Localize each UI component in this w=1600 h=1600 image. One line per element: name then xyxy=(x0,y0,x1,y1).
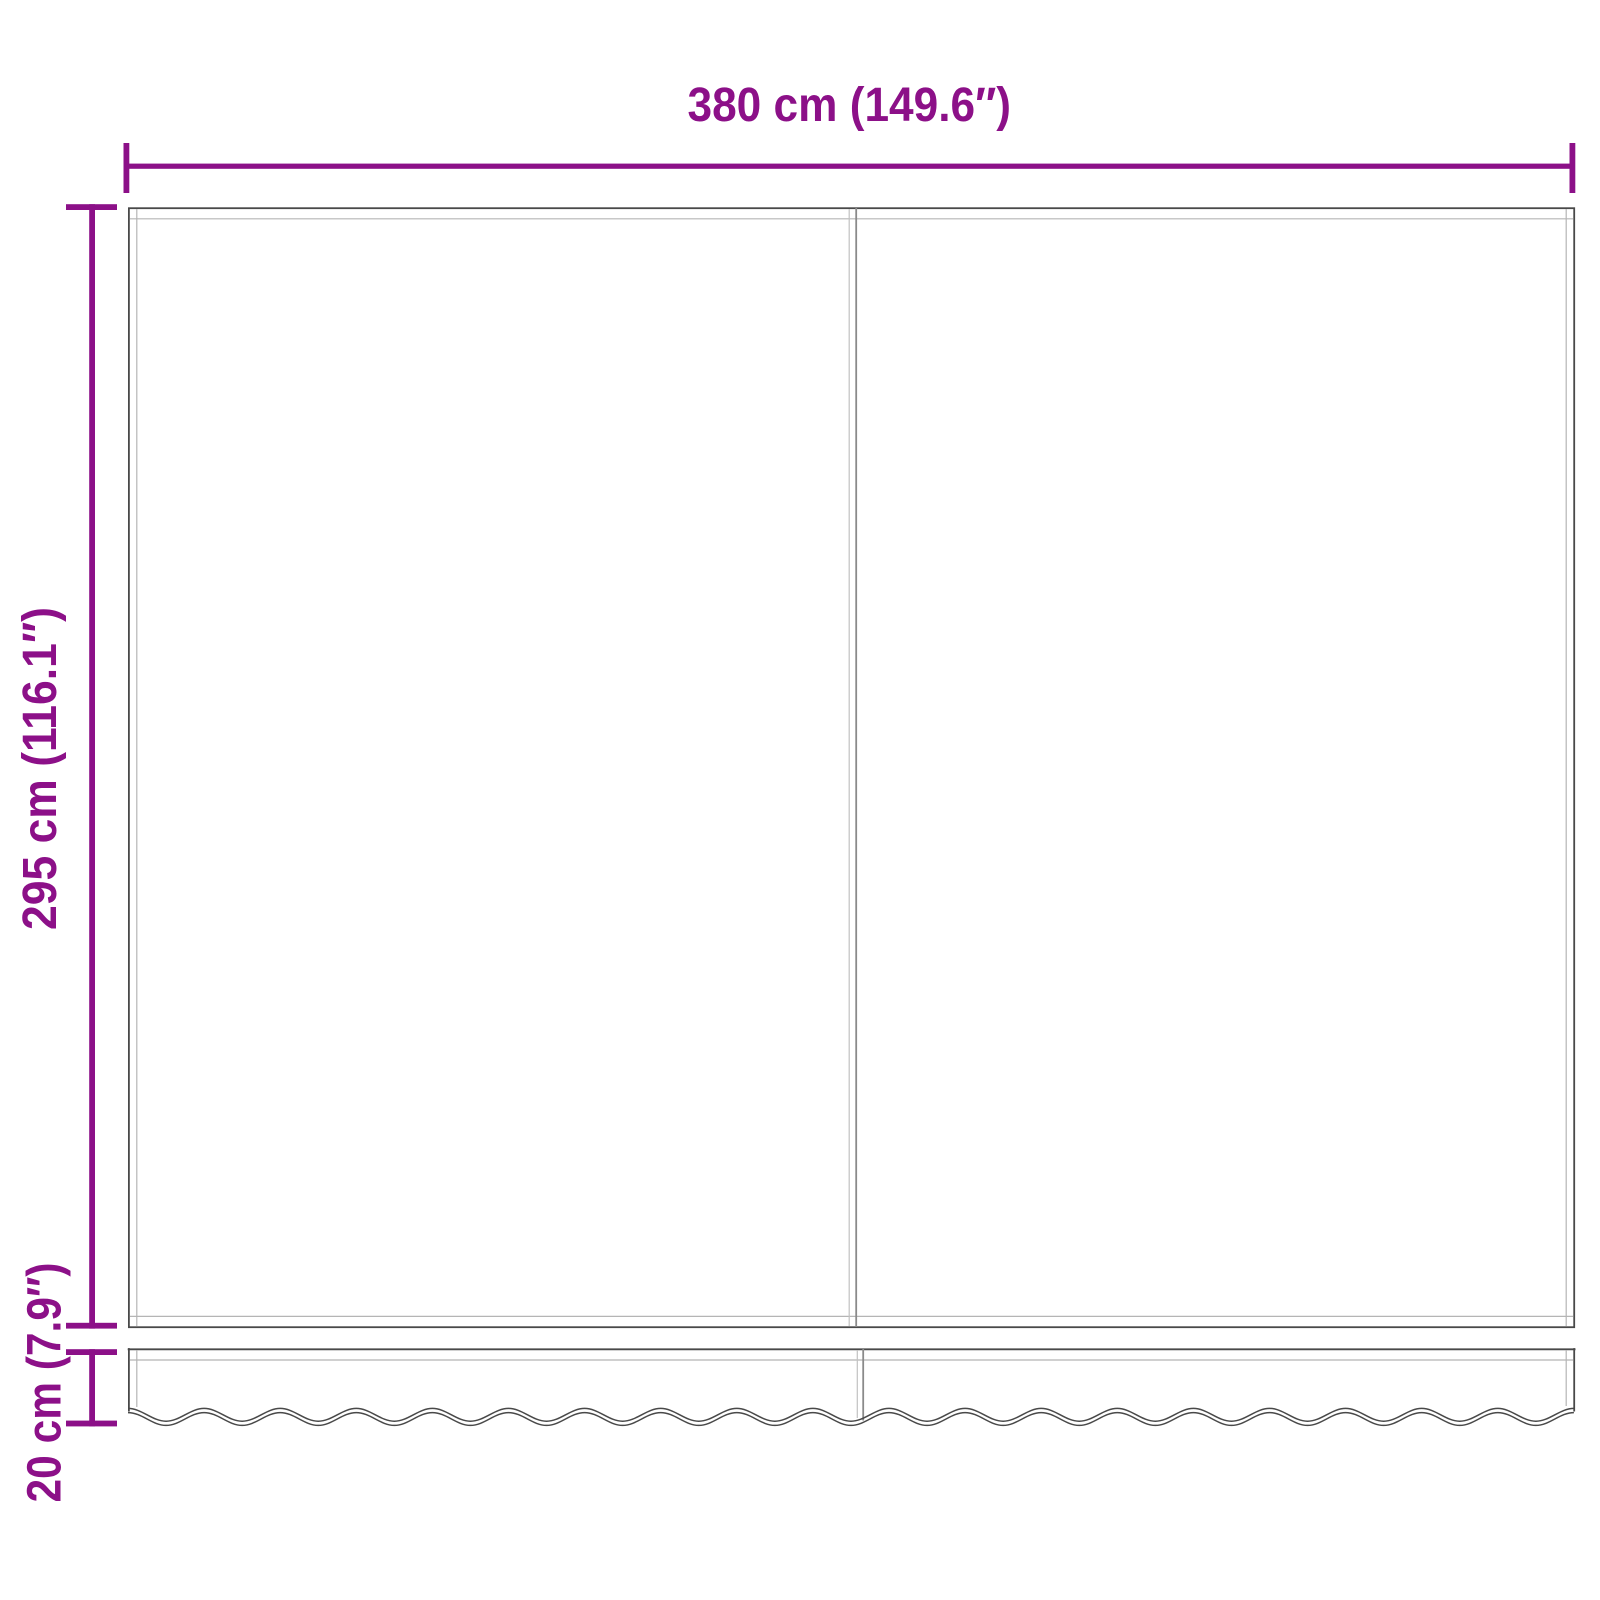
svg-text:20 cm (7.9″): 20 cm (7.9″) xyxy=(18,1263,72,1503)
svg-text:380 cm (149.6″): 380 cm (149.6″) xyxy=(688,78,1012,132)
svg-text:295 cm (116.1″): 295 cm (116.1″) xyxy=(13,607,67,930)
